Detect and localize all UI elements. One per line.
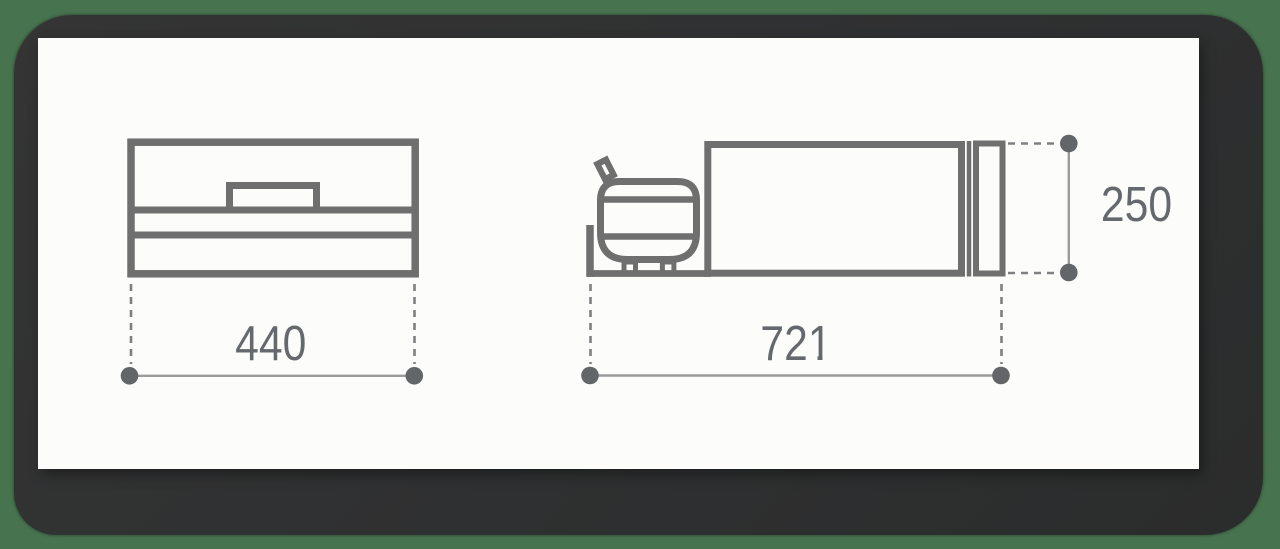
svg-text:721: 721: [760, 315, 831, 371]
svg-text:250: 250: [1101, 176, 1172, 232]
svg-text:440: 440: [235, 315, 306, 371]
